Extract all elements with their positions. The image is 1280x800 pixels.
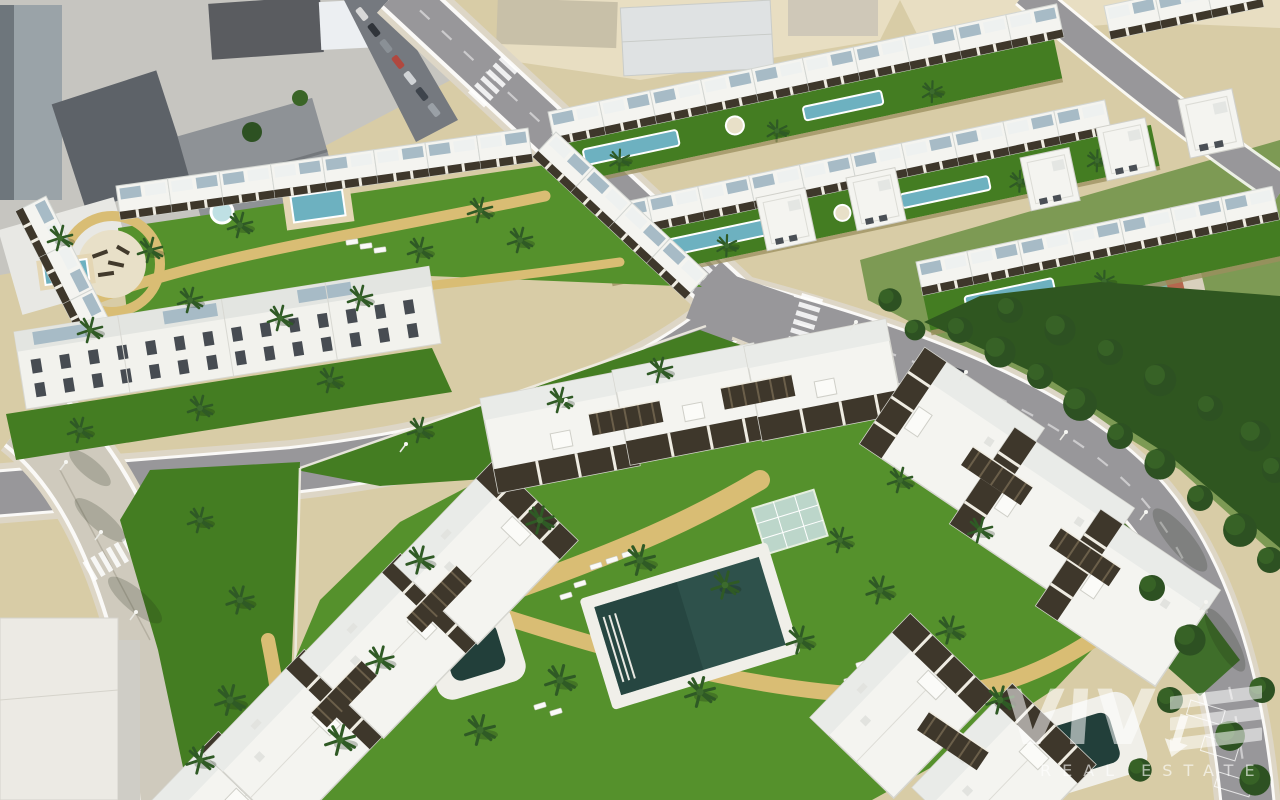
scene-svg (0, 0, 1280, 800)
aerial-render: VIV REAL ESTATE (0, 0, 1280, 800)
beige-building (496, 0, 618, 48)
tall-building-side (0, 5, 14, 200)
town-tree (242, 122, 262, 142)
town-tree (292, 90, 308, 106)
warehouse-building (620, 0, 773, 76)
detached-villa (1178, 89, 1244, 159)
side-wall (118, 640, 140, 800)
dark-roof-building-2 (208, 0, 324, 60)
detached-villa (846, 168, 906, 231)
detached-villa (1020, 148, 1080, 211)
white-roof (0, 618, 118, 800)
beige-building-2 (788, 0, 878, 36)
detached-villa (756, 188, 816, 251)
detached-villa (1096, 118, 1156, 181)
corner-building (0, 618, 140, 800)
